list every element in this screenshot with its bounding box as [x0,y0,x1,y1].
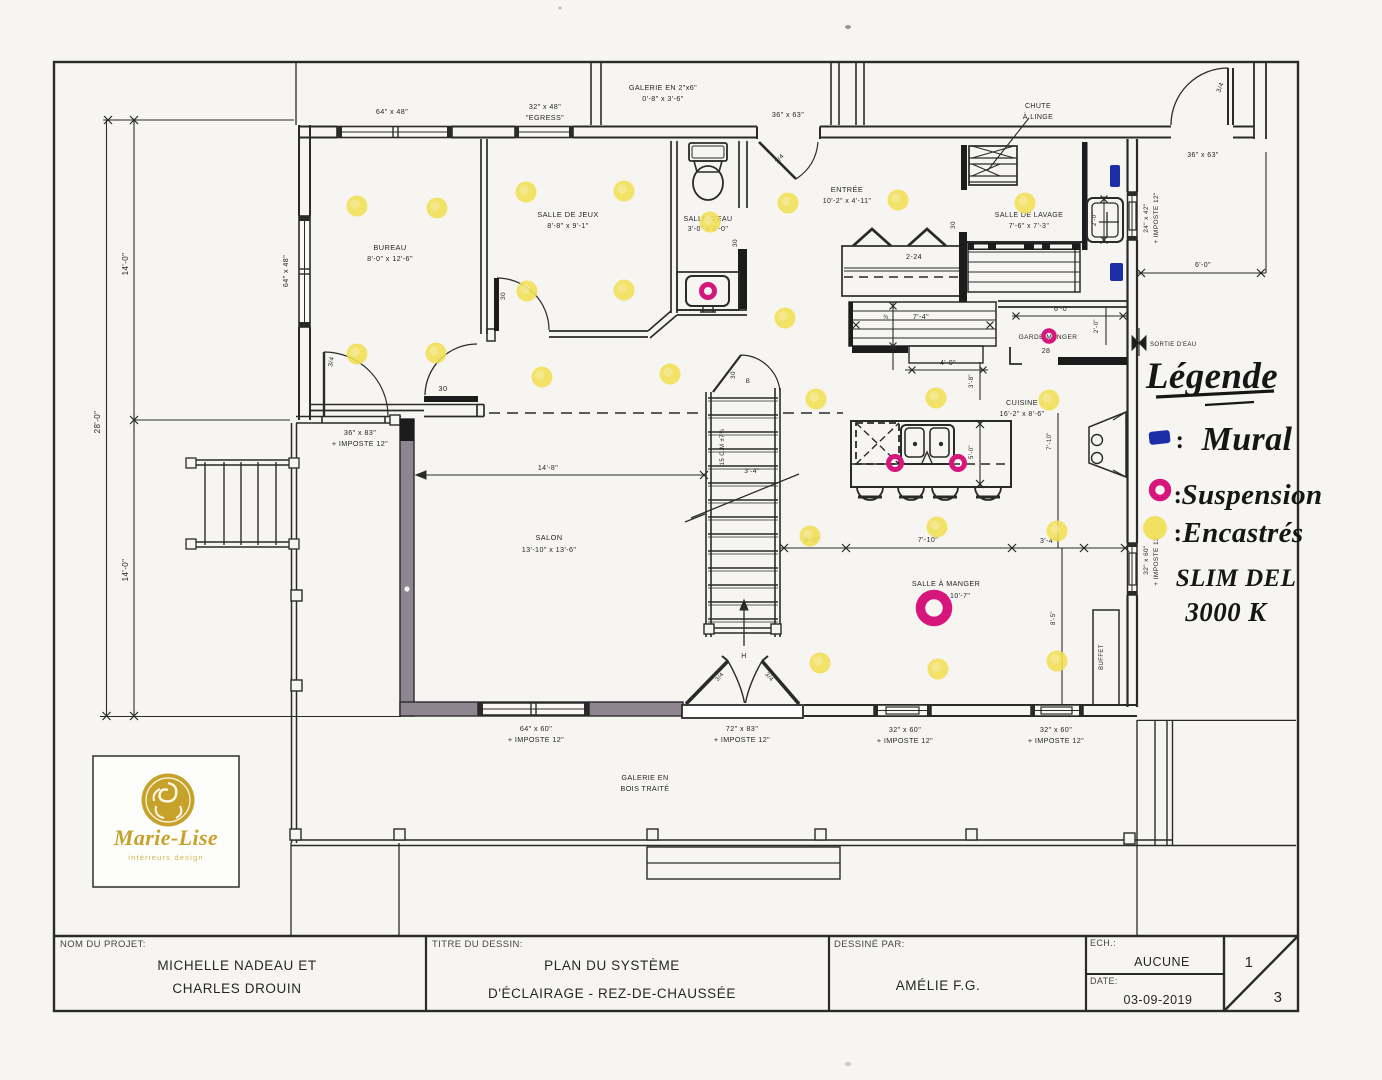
svg-text:AUCUNE: AUCUNE [1134,955,1190,969]
svg-text:30: 30 [438,384,447,393]
svg-text:8'-5": 8'-5" [1051,611,1057,625]
svg-text:14'-8": 14'-8" [538,465,558,472]
svg-text:Mural: Mural [1201,421,1293,458]
svg-text:10'-2" x 4'-11": 10'-2" x 4'-11" [823,198,872,205]
svg-text:03-09-2019: 03-09-2019 [1124,993,1193,1007]
svg-text::: : [1176,427,1185,454]
svg-text:5'-0": 5'-0" [969,445,975,459]
svg-text:Marie-Lise: Marie-Lise [113,825,218,850]
svg-text:intérieurs design: intérieurs design [128,853,203,862]
svg-text:4'-0": 4'-0" [940,360,956,367]
svg-text:+ IMPOSTE 12": + IMPOSTE 12" [332,439,388,448]
svg-text:30: 30 [730,371,737,379]
svg-text:14'-0": 14'-0" [121,253,130,276]
svg-text:SLIM DEL: SLIM DEL [1176,565,1297,592]
svg-text:+ IMPOSTE 12": + IMPOSTE 12" [1153,192,1160,244]
svg-text:28: 28 [1042,348,1051,355]
svg-text:BUREAU: BUREAU [373,243,406,252]
svg-text:30: 30 [500,292,507,300]
svg-text:+ IMPOSTE 12": + IMPOSTE 12" [877,736,933,745]
svg-text:2'-0": 2'-0" [1092,212,1098,226]
svg-text:AMÉLIE F.G.: AMÉLIE F.G. [896,978,981,993]
svg-text:D'ÉCLAIRAGE - REZ-DE-CHAUSSÉE: D'ÉCLAIRAGE - REZ-DE-CHAUSSÉE [488,986,736,1001]
svg-text:7'-4": 7'-4" [913,314,929,321]
svg-text:6'-0": 6'-0" [1195,262,1211,269]
svg-text:16'-2" x 8'-6": 16'-2" x 8'-6" [1000,411,1045,418]
svg-text:À LINGE: À LINGE [1023,112,1053,121]
svg-text:CUISINE: CUISINE [1006,398,1038,407]
svg-text:30: 30 [732,239,739,247]
svg-text:GALERIE EN 2"x6": GALERIE EN 2"x6" [629,83,697,92]
svg-text:36" x 83": 36" x 83" [344,428,376,437]
svg-text:7'-10": 7'-10" [918,537,938,544]
svg-text:B: B [746,378,751,385]
svg-text:36" x 63": 36" x 63" [772,110,804,119]
svg-text:Suspension: Suspension [1181,479,1322,511]
svg-text:TITRE DU DESSIN:: TITRE DU DESSIN: [432,939,523,950]
svg-text:13'-10" x 13'-6": 13'-10" x 13'-6" [522,545,577,554]
svg-text:32" x 60": 32" x 60" [1040,725,1072,734]
svg-text:SORTIE D'EAU: SORTIE D'EAU [1150,342,1197,348]
svg-text:0'-8" x 3'-6": 0'-8" x 3'-6" [642,94,683,103]
svg-text:CHUTE: CHUTE [1025,103,1051,110]
svg-text:BUFFET: BUFFET [1099,644,1105,670]
svg-text:+ IMPOSTE 12": + IMPOSTE 12" [1153,534,1160,586]
svg-text:3000 K: 3000 K [1184,597,1268,627]
svg-text:72" x 83": 72" x 83" [726,724,758,733]
svg-text:64" x 60": 64" x 60" [520,724,552,733]
svg-text:32" x 60": 32" x 60" [1143,545,1150,575]
svg-text:6'-0": 6'-0" [1054,306,1070,313]
svg-text:8'-0" x 12'-6": 8'-0" x 12'-6" [367,254,413,263]
svg-text:¾: ¾ [883,315,889,321]
svg-text:8'-8" x 9'-1": 8'-8" x 9'-1" [547,221,588,230]
svg-text:NOM DU PROJET:: NOM DU PROJET: [60,939,146,950]
svg-text:PLAN DU SYSTÈME: PLAN DU SYSTÈME [544,958,680,973]
svg-text:64" x 48": 64" x 48" [376,107,408,116]
svg-text:32" x 60": 32" x 60" [889,725,921,734]
svg-text:BOIS TRAITÉ: BOIS TRAITÉ [621,784,670,793]
svg-text:SALLE DE LAVAGE: SALLE DE LAVAGE [995,212,1063,219]
svg-text:"EGRESS": "EGRESS" [526,113,564,122]
svg-text:15 C.M ±7¾: 15 C.M ±7¾ [720,428,726,465]
svg-text:Encastrés: Encastrés [1181,517,1303,549]
svg-text:30: 30 [950,221,957,229]
svg-text:7'-6" x 7'-3": 7'-6" x 7'-3" [1009,223,1050,230]
svg-text:SALLE À MANGER: SALLE À MANGER [912,579,980,588]
svg-text:32" x 48": 32" x 48" [529,102,561,111]
svg-text:GALERIE EN: GALERIE EN [621,773,668,782]
svg-text:+ IMPOSTE 12": + IMPOSTE 12" [714,735,770,744]
svg-text:64" x 48": 64" x 48" [281,255,290,287]
svg-text:7'-10": 7'-10" [1047,432,1053,450]
svg-text:36" x 63": 36" x 63" [1187,152,1219,159]
svg-text:ECH.:: ECH.: [1090,938,1116,948]
svg-text:1: 1 [1245,954,1254,971]
svg-text:DATE:: DATE: [1090,976,1118,986]
svg-text:3'-8": 3'-8" [969,374,975,388]
svg-text:H: H [741,653,746,660]
svg-text:3: 3 [1274,989,1283,1006]
svg-text:2-24: 2-24 [906,252,922,261]
svg-text:SALON: SALON [535,533,562,542]
svg-text:2'-0": 2'-0" [1094,319,1100,333]
svg-text:DESSINÉ PAR:: DESSINÉ PAR: [834,939,905,950]
svg-text:3'-4": 3'-4" [744,468,760,475]
svg-text:SALLE DE JEUX: SALLE DE JEUX [537,210,598,219]
svg-text:+ IMPOSTE 12": + IMPOSTE 12" [1028,736,1084,745]
svg-text:28'-0": 28'-0" [93,411,102,434]
svg-text:MICHELLE NADEAU ET: MICHELLE NADEAU ET [157,958,316,973]
svg-text:14'-0": 14'-0" [121,559,130,582]
svg-text:ENTRÉE: ENTRÉE [831,185,863,194]
svg-text:CHARLES DROUIN: CHARLES DROUIN [172,981,301,996]
svg-text:24" x 42": 24" x 42" [1143,203,1150,233]
svg-text:+ IMPOSTE 12": + IMPOSTE 12" [508,735,564,744]
svg-text::: : [1174,520,1183,547]
